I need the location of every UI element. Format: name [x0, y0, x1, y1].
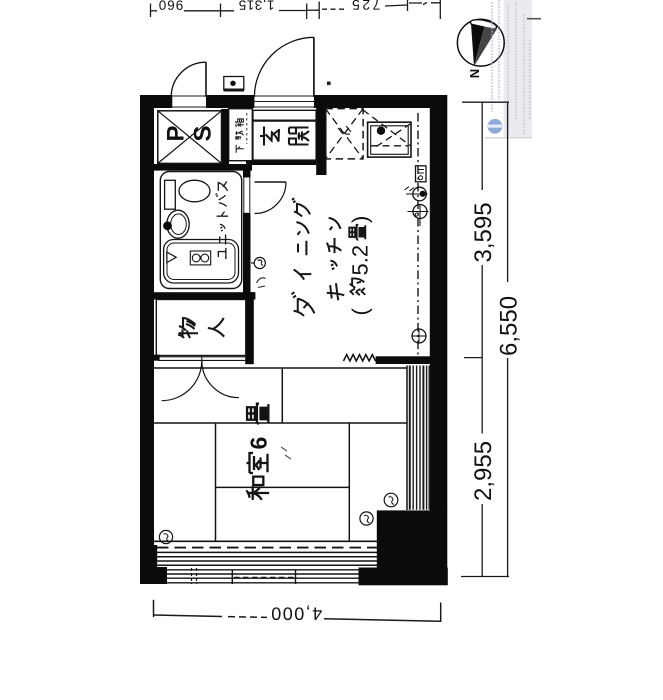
svg-text:2,955: 2,955	[470, 441, 497, 501]
svg-text:1,315: 1,315	[238, 0, 274, 13]
svg-text:6,550: 6,550	[496, 296, 523, 356]
svg-text:N: N	[467, 69, 482, 78]
svg-text:): )	[348, 216, 373, 223]
svg-text:P: P	[163, 125, 190, 141]
svg-text:3,595: 3,595	[470, 202, 497, 262]
svg-text:725: 725	[350, 0, 381, 13]
svg-text:5.2: 5.2	[348, 245, 373, 276]
svg-text:S: S	[190, 125, 217, 141]
svg-text:(: (	[348, 308, 373, 316]
svg-text:6: 6	[246, 437, 272, 450]
svg-text:4,000: 4,000	[270, 604, 323, 624]
svg-text:960: 960	[158, 0, 184, 13]
